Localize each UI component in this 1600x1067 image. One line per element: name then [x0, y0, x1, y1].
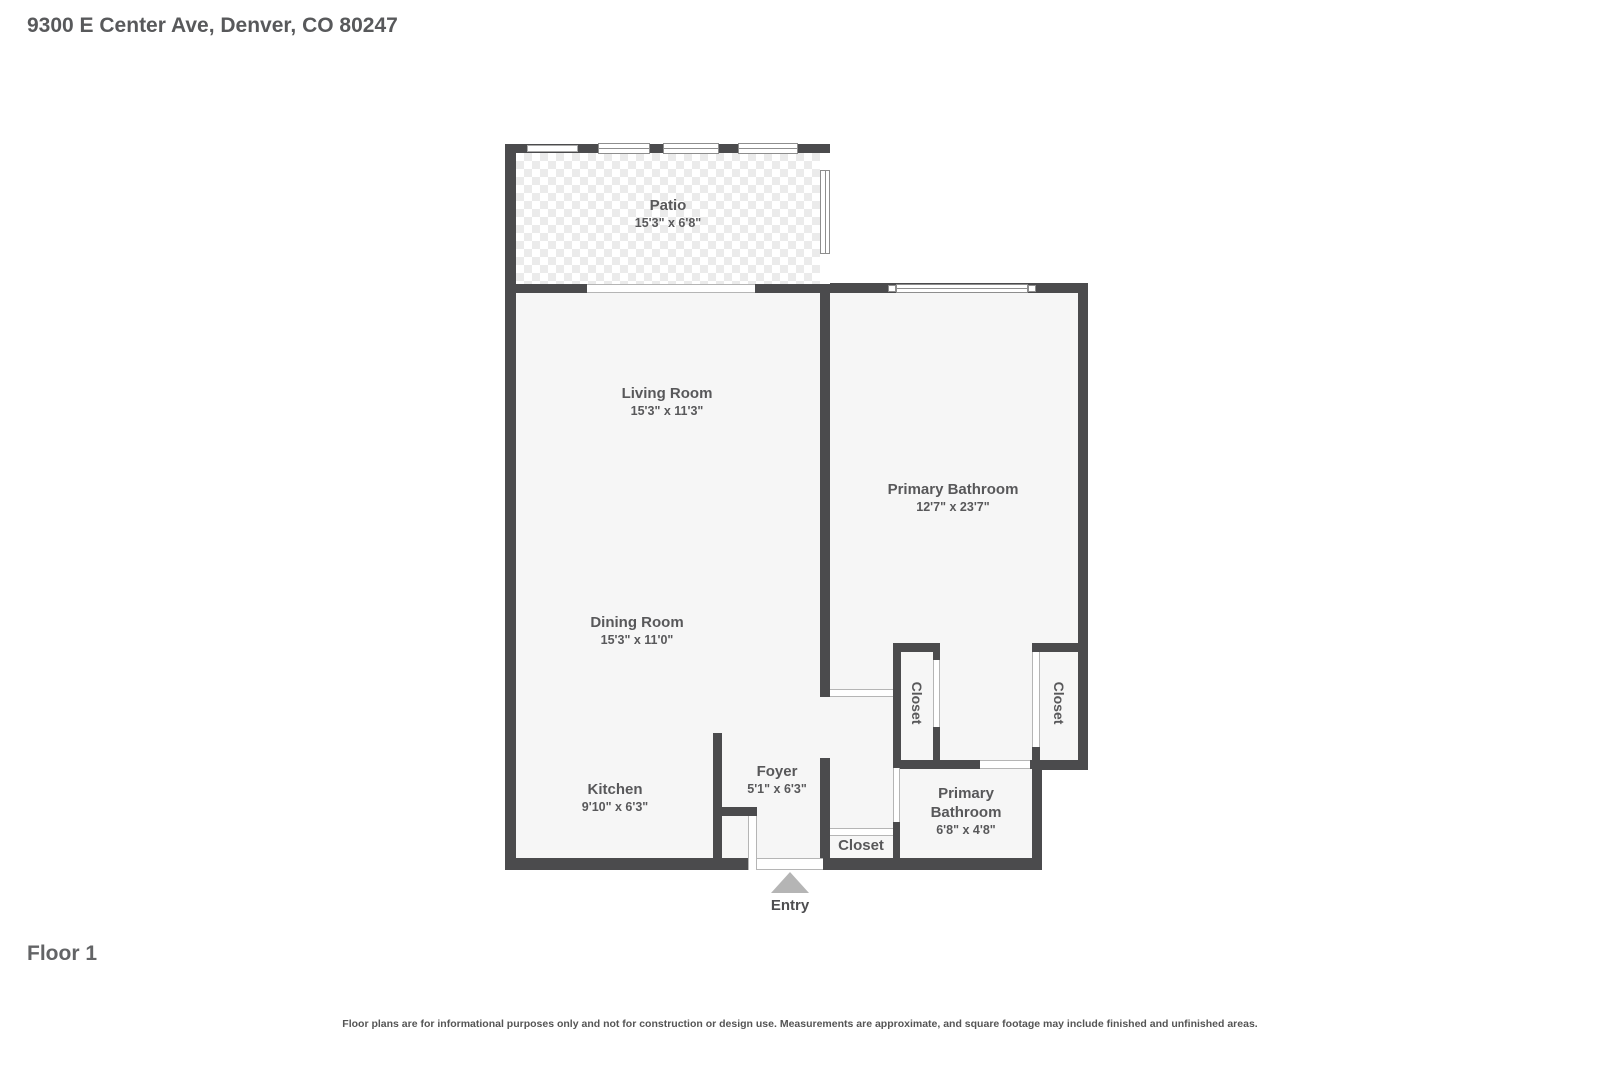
room-dims: 9'10" x 6'3": [582, 799, 648, 815]
room-name: Closet: [838, 837, 884, 855]
entry-label: Entry: [771, 897, 809, 914]
floor-label: Floor 1: [27, 942, 97, 966]
closet-right-label: Closet: [1051, 682, 1067, 725]
wall-left: [505, 144, 516, 870]
primary-bathroom-large-label: Primary Bathroom 12'7" x 23'7": [888, 481, 1019, 515]
wall-bath-small-west-lower: [893, 822, 900, 858]
wall-kitchen-foyer: [713, 733, 722, 870]
wall-kitchen-stub: [713, 807, 757, 816]
room-name: Primary Bathroom: [914, 784, 1018, 822]
patio-window-2: [663, 143, 719, 154]
room-dims: 15'3" x 6'8": [635, 215, 701, 231]
patio-sliding-door-opening: [587, 284, 755, 293]
room-name: Dining Room: [590, 614, 683, 632]
closet-right-door-opening: [1032, 652, 1040, 747]
room-fill-main: [505, 284, 1088, 770]
wall-closet-right-top: [1032, 643, 1088, 652]
bathroom-window-cap-right: [1028, 285, 1036, 292]
wall-bath-small-top-west: [893, 760, 980, 769]
room-name: Kitchen: [582, 781, 648, 799]
bathroom-window-cap-left: [888, 285, 896, 292]
wall-center-vertical-lower: [820, 758, 830, 870]
patio-window-1: [598, 143, 650, 154]
patio-label: Patio 15'3" x 6'8": [635, 197, 701, 231]
foyer-label: Foyer 5'1" x 6'3": [747, 763, 807, 797]
pantry-door-opening: [748, 816, 757, 870]
kitchen-label: Kitchen 9'10" x 6'3": [582, 781, 648, 815]
disclaimer-text: Floor plans are for informational purpos…: [0, 1018, 1600, 1030]
wall-right: [1078, 283, 1088, 770]
primary-bathroom-small-label: Primary Bathroom 6'8" x 4'8": [914, 784, 1018, 838]
room-name: Living Room: [622, 385, 713, 403]
closet-left-label: Closet: [909, 682, 925, 725]
room-dims: 12'7" x 23'7": [888, 499, 1019, 515]
wall-center-vertical-upper: [820, 284, 830, 697]
wall-closet-left-west: [893, 652, 901, 769]
wall-bath-small-east: [1032, 769, 1042, 870]
bathroom-window: [896, 284, 1028, 293]
living-room-label: Living Room 15'3" x 11'3": [622, 385, 713, 419]
bath-small-top-door-opening: [980, 760, 1030, 769]
room-dims: 5'1" x 6'3": [747, 781, 807, 797]
room-dims: 15'3" x 11'3": [622, 403, 713, 419]
room-dims: 6'8" x 4'8": [914, 822, 1018, 838]
room-dims: 15'3" x 11'0": [590, 632, 683, 648]
room-name: Primary Bathroom: [888, 481, 1019, 499]
wall-bath-small-top-east: [1030, 760, 1042, 769]
bath-small-side-door-opening: [893, 768, 900, 822]
patio-window-3: [738, 143, 798, 154]
entry-arrow-icon: [771, 872, 809, 893]
closet-bottom-label: Closet: [838, 837, 884, 855]
floorplan-page: 9300 E Center Ave, Denver, CO 80247: [0, 0, 1600, 1067]
closet-bottom-opening: [830, 828, 893, 836]
patio-rail-panel: [527, 145, 578, 152]
entry-door-opening: [757, 858, 823, 870]
patio-side-window: [820, 170, 830, 254]
wall-closet-left-east-upper: [933, 652, 940, 660]
dining-room-label: Dining Room 15'3" x 11'0": [590, 614, 683, 648]
room-name: Foyer: [747, 763, 807, 781]
room-name: Patio: [635, 197, 701, 215]
floorplan: Patio 15'3" x 6'8" Living Room 15'3" x 1…: [0, 0, 1600, 1067]
closet-left-door-opening: [933, 660, 940, 727]
wall-closet-left-top: [893, 643, 940, 652]
dining-hall-opening: [830, 689, 893, 697]
